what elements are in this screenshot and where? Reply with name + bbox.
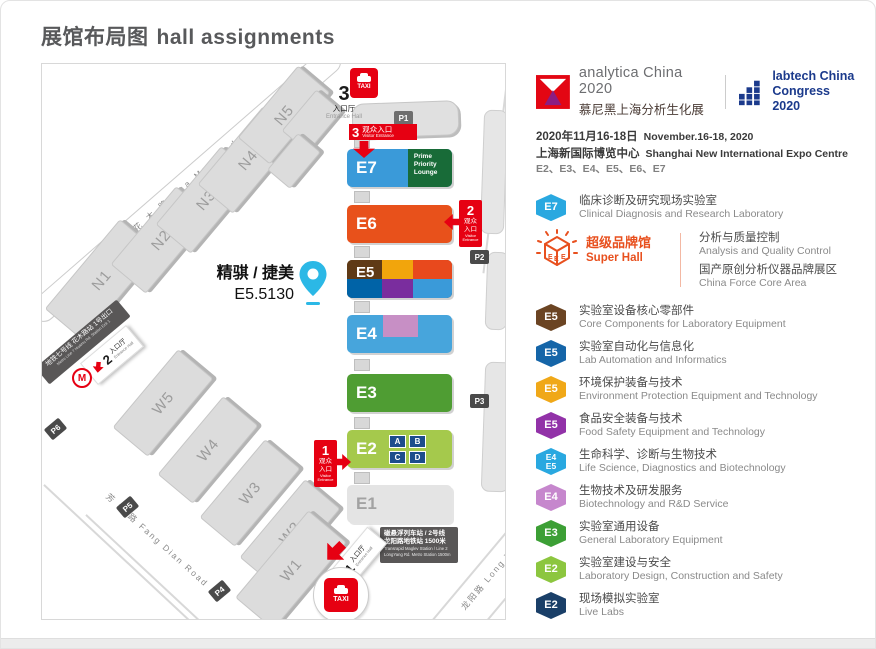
entrance-hall-2-arrow-icon	[92, 361, 104, 373]
e5-sector-amber	[382, 260, 414, 279]
legend-en: Live Labs	[579, 606, 660, 619]
badge-text: E3	[544, 528, 557, 539]
legend-list: E7 临床诊断及研究现场实验室 Clinical Diagnosis and R…	[536, 193, 856, 620]
metro-logo-icon: M	[72, 368, 92, 388]
legend-zh: 食品安全装备与技术	[579, 412, 765, 426]
hall-w4-label: W4	[194, 435, 223, 465]
visitor-entrance-2-zh1: 观众	[464, 218, 477, 226]
taxi-car-icon	[334, 588, 348, 594]
hall-e3: E3	[347, 374, 452, 412]
super-hall-icon: EEE	[536, 229, 578, 273]
event-venue: 上海新国际博览中心Shanghai New International Expo…	[536, 146, 856, 163]
labtech-logo-text: labtech China Congress 2020	[772, 69, 856, 114]
hall-e3-label: E3	[356, 383, 377, 403]
super-hall-sub1-en: Analysis and Quality Control	[699, 245, 837, 258]
event-venue-en: Shanghai New International Expo Centre	[646, 148, 848, 160]
hall-e1-label: E1	[356, 494, 377, 514]
booth-callout-name: 精骐 / 捷美	[192, 264, 294, 285]
visitor-entrance-3-badge: 3 观众入口 Visitor Entrance	[349, 124, 417, 140]
hall-e2-label: E2	[356, 439, 377, 459]
p2-label: P2	[475, 253, 485, 262]
legend-zh: 现场模拟实验室	[579, 592, 660, 606]
p4-label: P4	[213, 584, 226, 597]
visitor-entrance-3-en: Visitor Entrance	[362, 134, 394, 139]
event-date-en: November.16-18, 2020	[644, 131, 754, 143]
e2-section-d: D	[409, 451, 426, 464]
legend-item-e5-automation: E5 实验室自动化与信息化 Lab Automation and Informa…	[536, 339, 856, 368]
taxi-badge: TAXI	[324, 578, 358, 612]
badge-text: E4	[544, 492, 557, 503]
venue-map: 花 木 路 Hua Mu Road 芳 甸 路 Fang Dian Road 龙…	[41, 63, 506, 620]
legend-zh: 临床诊断及研究现场实验室	[579, 194, 783, 208]
hall-badge-e4: E4	[536, 484, 566, 511]
hall-badge-e4-e5: E4E5	[536, 448, 566, 475]
legend-en: Laboratory Design, Construction and Safe…	[579, 570, 783, 583]
hall-connector	[354, 359, 370, 371]
super-hall-divider	[680, 233, 681, 287]
e2-sections: A B C D	[389, 435, 426, 464]
visitor-entrance-3-number: 3	[352, 126, 359, 139]
analytica-logo-icon	[536, 74, 570, 110]
page-title-zh: 展馆布局图	[41, 26, 149, 49]
badge-text: E5	[544, 312, 557, 323]
event-halls-list: E2、E3、E4、E5、E6、E7	[536, 162, 856, 178]
hall-e4: E4	[347, 315, 452, 353]
hall-n1-label: N1	[88, 266, 115, 293]
badge-text-2: E5	[546, 462, 556, 471]
hall-e5: E5	[347, 260, 452, 298]
event-date-zh: 2020年11月16-18日	[536, 131, 638, 143]
metro-m: M	[78, 373, 86, 384]
hall-e1: E1	[347, 485, 452, 523]
legend-zh: 实验室通用设备	[579, 520, 723, 534]
legend-item-e3-general-lab: E3 实验室通用设备 General Laboratory Equipment	[536, 519, 856, 548]
parking-p1-badge: P1	[394, 111, 413, 125]
maglev-zh1: 磁悬浮列车站 / 2号线	[384, 530, 454, 538]
hall-e4-label: E4	[356, 324, 377, 344]
svg-text:E: E	[561, 254, 566, 261]
logo-divider	[725, 75, 726, 109]
badge-text: E2	[544, 600, 557, 611]
event-details: 2020年11月16-18日November.16-18, 2020 上海新国际…	[536, 129, 856, 178]
taxi-label: TAXI	[333, 596, 348, 603]
hall-badge-e7: E7	[536, 194, 566, 221]
hall-e7-label: E7	[356, 158, 377, 178]
visitor-entrance-2-badge: 2 观众 入口 Visitor Entrance	[459, 200, 482, 247]
super-hall-sub2-zh: 国产原创分析仪器品牌展区	[699, 263, 837, 277]
legend-en: Biotechnology and R&D Service	[579, 498, 728, 511]
badge-text: E2	[544, 564, 557, 575]
legend-en: Core Components for Laboratory Equipment	[579, 318, 786, 331]
e2-section-b: B	[409, 435, 426, 448]
svg-text:E: E	[548, 254, 553, 261]
legend-en: Environment Protection Equipment and Tec…	[579, 390, 818, 403]
legend-panel: analytica China 2020 慕尼黑上海分析生化展 labtech …	[536, 65, 856, 627]
parking-strip	[480, 110, 506, 235]
entrance-hall-3: 3 入口厅 Entrance Hall	[325, 84, 363, 120]
parking-p4-badge: P4	[208, 580, 232, 603]
legend-zh: 环境保护装备与技术	[579, 376, 818, 390]
page: 展馆布局图hall assignments 花 木 路 Hua Mu Road …	[0, 0, 876, 649]
prime-priority-lounge: Prime Priority Lounge	[408, 149, 452, 187]
super-hall-sub2-en: China Force Core Area	[699, 277, 837, 290]
event-date: 2020年11月16-18日November.16-18, 2020	[536, 129, 856, 146]
hall-connector	[354, 472, 370, 484]
p6-label: P6	[49, 422, 62, 435]
parking-p3-badge: P3	[470, 394, 489, 408]
hall-w1-label: W1	[277, 555, 306, 585]
entrance-hall-3-zh: 入口厅	[325, 104, 363, 114]
hall-e2: E2 A B C D	[347, 430, 452, 468]
e5-sector-blue	[347, 279, 382, 298]
booth-callout: 精骐 / 捷美 E5.5130	[192, 264, 294, 306]
maglev-info-box: 磁悬浮列车站 / 2号线 龙阳路地铁站 1500米 Transrapid Mag…	[380, 527, 458, 563]
legend-zh: 实验室设备核心零部件	[579, 304, 786, 318]
hall-badge-e2-navy: E2	[536, 592, 566, 619]
maglev-en1: Transrapid Maglev Station / Line 2	[384, 546, 454, 551]
badge-text: E7	[544, 202, 557, 213]
legend-zh: 实验室自动化与信息化	[579, 340, 727, 354]
hall-badge-e5-amber: E5	[536, 376, 566, 403]
maglev-en2: LongYang Rd. Metro Station 1500m	[384, 552, 454, 557]
legend-item-e5-core: E5 实验室设备核心零部件 Core Components for Labora…	[536, 303, 856, 332]
badge-text: E5	[544, 384, 557, 395]
visitor-entrance-1-number: 1	[322, 444, 329, 458]
hall-connector	[354, 191, 370, 203]
labtech-line1: labtech China	[772, 69, 856, 84]
e2-section-c: C	[389, 451, 406, 464]
analytica-name: analytica China 2020	[579, 65, 712, 97]
hall-w5-label: W5	[149, 388, 178, 418]
hall-connector	[354, 246, 370, 258]
labtech-line2: Congress 2020	[772, 84, 856, 114]
super-hall-name: 超级品牌馆 Super Hall	[586, 235, 670, 264]
super-hall-topics: 分析与质量控制 Analysis and Quality Control 国产原…	[699, 231, 837, 295]
analytica-logo-text: analytica China 2020 慕尼黑上海分析生化展	[579, 65, 712, 118]
visitor-entrance-2-en: Visitor Entrance	[459, 234, 482, 244]
legend-item-e7: E7 临床诊断及研究现场实验室 Clinical Diagnosis and R…	[536, 193, 856, 222]
hall-badge-e5-brown: E5	[536, 304, 566, 331]
page-title: 展馆布局图hall assignments	[41, 21, 335, 51]
super-hall-en: Super Hall	[586, 252, 670, 264]
hall-e6: E6	[347, 205, 452, 243]
hall-e5-label: E5	[356, 264, 374, 281]
legend-zh: 实验室建设与安全	[579, 556, 783, 570]
badge-text: E5	[544, 348, 557, 359]
legend-item-super-hall: EEE 超级品牌馆 Super Hall 分析与质量控制 Analysis an…	[536, 229, 856, 295]
e2-section-a: A	[389, 435, 406, 448]
e5-sector-red	[413, 260, 452, 279]
svg-text:E: E	[554, 256, 559, 263]
p3-label: P3	[475, 397, 485, 406]
parking-strip	[481, 362, 506, 493]
event-venue-zh: 上海新国际博览中心	[536, 148, 640, 160]
location-pin-icon	[298, 260, 328, 307]
legend-en: Life Science, Diagnostics and Biotechnol…	[579, 462, 786, 475]
super-hall-sub1-zh: 分析与质量控制	[699, 231, 837, 245]
legend-zh: 生物技术及研发服务	[579, 484, 728, 498]
entrance-hall-3-en: Entrance Hall	[325, 114, 363, 121]
hall-connector	[354, 417, 370, 429]
hall-badge-e5-blue: E5	[536, 340, 566, 367]
e4-sector-mauve	[383, 315, 419, 337]
event-logos: analytica China 2020 慕尼黑上海分析生化展 labtech …	[536, 65, 856, 118]
location-pin-base	[306, 302, 320, 305]
hall-badge-e2-green: E2	[536, 556, 566, 583]
analytica-zh: 慕尼黑上海分析生化展	[579, 99, 712, 118]
legend-item-e4-biotech: E4 生物技术及研发服务 Biotechnology and R&D Servi…	[536, 483, 856, 512]
hall-w3-label: W3	[236, 478, 265, 508]
legend-item-e5-food-safety: E5 食品安全装备与技术 Food Safety Equipment and T…	[536, 411, 856, 440]
parking-p6-badge: P6	[44, 418, 68, 441]
e5-sector-purple	[382, 279, 414, 298]
legend-zh: 生命科学、诊断与生物技术	[579, 448, 786, 462]
hall-badge-e5-purple: E5	[536, 412, 566, 439]
e5-sector-lightblue	[413, 279, 452, 298]
legend-item-e5-environment: E5 环境保护装备与技术 Environment Protection Equi…	[536, 375, 856, 404]
legend-item-e2-live-labs: E2 现场模拟实验室 Live Labs	[536, 591, 856, 620]
booth-callout-number: E5.5130	[192, 285, 294, 306]
visitor-entrance-1-badge: 1 观众 入口 Visitor Entrance	[314, 440, 337, 487]
super-hall-zh: 超级品牌馆	[586, 235, 670, 252]
legend-item-e4e5-life-science: E4E5 生命科学、诊断与生物技术 Life Science, Diagnost…	[536, 447, 856, 476]
taxi-car-icon	[357, 76, 371, 82]
hall-connector	[354, 301, 370, 313]
taxi-stand-south: TAXI	[313, 567, 369, 620]
p1-label: P1	[399, 114, 409, 123]
visitor-entrance-1-zh1: 观众	[319, 458, 332, 466]
hall-badge-e3: E3	[536, 520, 566, 547]
badge-text: E5	[544, 420, 557, 431]
legend-en: Clinical Diagnosis and Research Laborato…	[579, 208, 783, 221]
p5-label: P5	[121, 500, 134, 513]
entrance-hall-3-number: 3	[325, 84, 363, 104]
legend-en: Food Safety Equipment and Technology	[579, 426, 765, 439]
labtech-logo-icon	[739, 78, 763, 106]
footer-band	[1, 638, 875, 648]
maglev-zh2: 龙阳路地铁站 1500米	[384, 538, 454, 546]
legend-item-e2-lab-design: E2 实验室建设与安全 Laboratory Design, Construct…	[536, 555, 856, 584]
parking-p2-badge: P2	[470, 250, 489, 264]
legend-en: Lab Automation and Informatics	[579, 354, 727, 367]
visitor-entrance-2-number: 2	[467, 204, 474, 218]
page-title-en: hall assignments	[157, 26, 335, 49]
hall-e6-label: E6	[356, 214, 377, 234]
visitor-entrance-1-en: Visitor Entrance	[314, 474, 337, 484]
legend-en: General Laboratory Equipment	[579, 534, 723, 547]
